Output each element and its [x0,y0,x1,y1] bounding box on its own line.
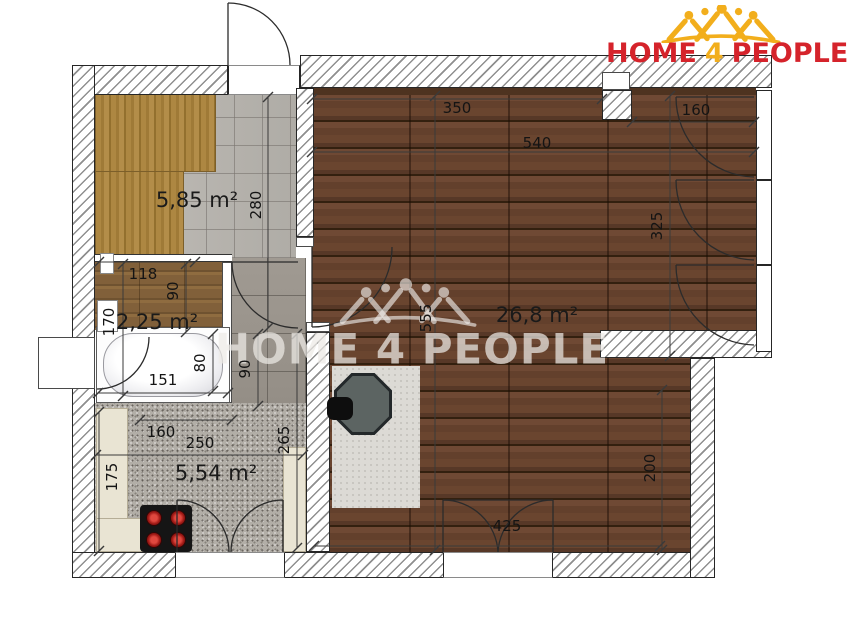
door-arc [228,3,290,65]
dim-label-kit_160: 160 [147,423,176,441]
room-label-kitchen: 5,54 m² [175,461,257,485]
dim-label-kit_250: 250 [186,434,215,452]
dim-label-corr_90: 90 [236,359,254,378]
dim-label-right_325: 325 [648,212,666,241]
door-arc [443,500,498,552]
door-arc [232,262,298,328]
room-label-living: 26,8 m² [496,303,578,327]
dim-label-top_350: 350 [443,99,472,117]
floor-plan-canvas: 3505401603255552004252801189017015180902… [0,0,848,636]
door-arc [177,500,229,552]
door-arc [312,247,392,327]
window-arc [676,265,754,345]
door-arc [231,500,283,552]
dim-label-kit_175: 175 [103,463,121,492]
dim-label-tub_151: 151 [149,371,178,389]
dim-label-lr_200: 200 [641,454,659,483]
dim-label-bath_90: 90 [164,281,182,300]
window-arc [676,180,754,260]
room-label-bathroom: 2,25 m² [116,310,198,334]
dim-label-corr_265: 265 [275,426,293,455]
dim-label-top_540: 540 [523,134,552,152]
dim-label-mid_555: 555 [417,304,435,333]
dim-label-hall_280: 280 [247,191,265,220]
dim-label-bath_118: 118 [129,265,158,283]
room-label-hallway: 5,85 m² [156,188,238,212]
dim-label-bottom_425: 425 [493,517,522,535]
dim-label-tr_160: 160 [682,101,711,119]
dim-label-tub_80: 80 [191,353,209,372]
